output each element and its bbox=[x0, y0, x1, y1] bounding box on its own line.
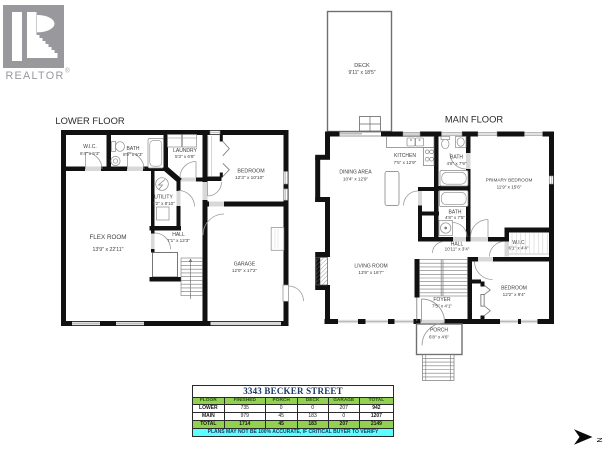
svg-text:PRIMARY BEDROOM: PRIMARY BEDROOM bbox=[486, 178, 533, 183]
svg-text:12'3" x 10'10": 12'3" x 10'10" bbox=[235, 175, 264, 181]
svg-text:8'9" x 5'3": 8'9" x 5'3" bbox=[123, 152, 143, 157]
svg-text:4'8" x 7'5": 4'8" x 7'5" bbox=[445, 215, 465, 220]
svg-text:BEDROOM: BEDROOM bbox=[501, 286, 527, 292]
svg-text:DINING AREA: DINING AREA bbox=[339, 170, 372, 176]
svg-text:MAIN FLOOR: MAIN FLOOR bbox=[445, 114, 504, 125]
svg-text:7'5" x 12'9": 7'5" x 12'9" bbox=[394, 160, 417, 165]
svg-text:6'8" x 4'6": 6'8" x 4'6" bbox=[429, 335, 449, 340]
svg-text:6'4" x 5'3": 6'4" x 5'3" bbox=[80, 151, 100, 156]
svg-text:REALTOR: REALTOR bbox=[5, 70, 64, 82]
svg-text:FOYER: FOYER bbox=[433, 297, 451, 303]
svg-text:7'5" x 4'1": 7'5" x 4'1" bbox=[432, 304, 452, 309]
svg-text:12'2" x 9'4": 12'2" x 9'4" bbox=[503, 292, 526, 297]
svg-text:KITCHEN: KITCHEN bbox=[394, 153, 416, 159]
svg-text:10'4" x 12'9": 10'4" x 12'9" bbox=[343, 177, 369, 182]
svg-text:UTILITY: UTILITY bbox=[154, 195, 173, 201]
svg-text:PORCH: PORCH bbox=[430, 328, 448, 334]
svg-text:7'2" x 8'10": 7'2" x 8'10" bbox=[152, 201, 175, 206]
svg-text:®: ® bbox=[65, 68, 70, 75]
svg-text:DECK: DECK bbox=[354, 63, 370, 69]
svg-text:6'1" x 4'4": 6'1" x 4'4" bbox=[508, 246, 528, 251]
svg-text:FLEX ROOM: FLEX ROOM bbox=[89, 234, 126, 241]
svg-text:11'9" x 15'6": 11'9" x 15'6" bbox=[497, 185, 522, 190]
svg-text:BATH: BATH bbox=[450, 155, 463, 161]
svg-text:9'11" x 18'5": 9'11" x 18'5" bbox=[348, 70, 375, 76]
svg-text:12'0" x 17'2": 12'0" x 17'2" bbox=[232, 268, 258, 273]
svg-text:13'9" x 22'11": 13'9" x 22'11" bbox=[93, 247, 124, 253]
svg-text:BEDROOM: BEDROOM bbox=[237, 169, 264, 175]
svg-text:13'9" x 16'7": 13'9" x 16'7" bbox=[358, 270, 384, 275]
svg-text:4'6" x 7'9": 4'6" x 7'9" bbox=[446, 161, 466, 166]
svg-text:LIVING ROOM: LIVING ROOM bbox=[354, 264, 387, 270]
svg-text:W.I.C.: W.I.C. bbox=[83, 144, 97, 150]
svg-text:10'11" x 3'4": 10'11" x 3'4" bbox=[445, 247, 470, 252]
svg-text:LOWER FLOOR: LOWER FLOOR bbox=[55, 115, 125, 126]
svg-text:N: N bbox=[595, 437, 602, 442]
svg-text:GARAGE: GARAGE bbox=[234, 262, 256, 268]
svg-text:7'1" x 12'3": 7'1" x 12'3" bbox=[167, 238, 190, 243]
svg-text:5'3" x 6'8": 5'3" x 6'8" bbox=[175, 154, 195, 159]
